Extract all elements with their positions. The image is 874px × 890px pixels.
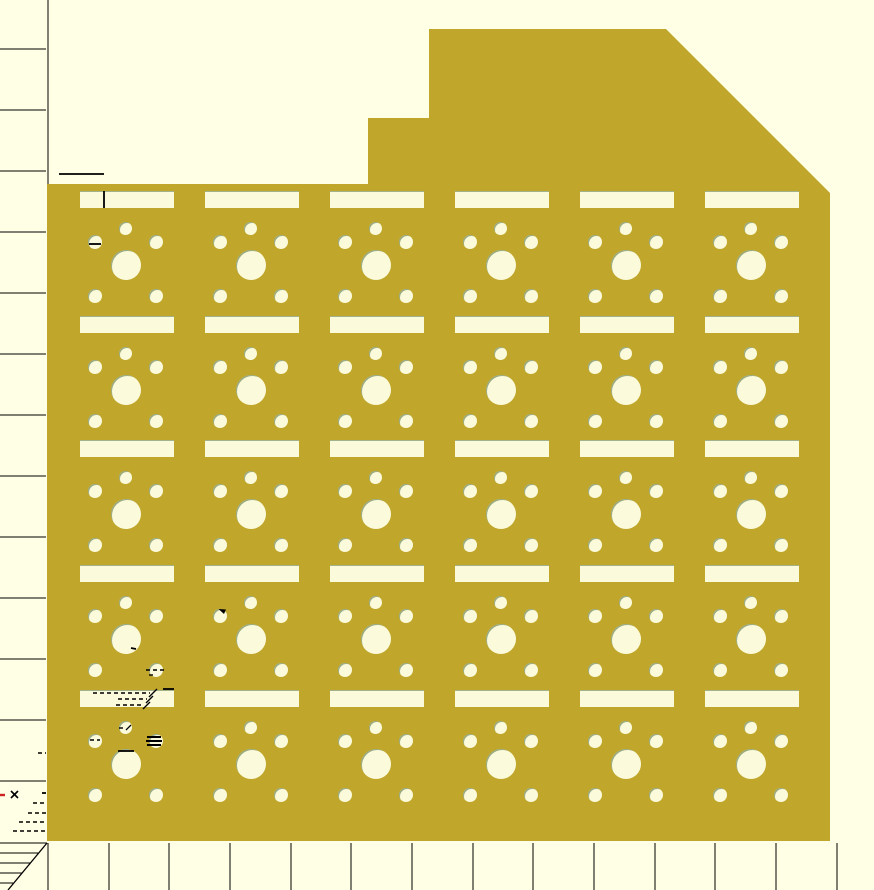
- hole-slot: [580, 316, 674, 333]
- cad-viewport[interactable]: [0, 0, 874, 890]
- upper-left-small-hole: [713, 734, 727, 748]
- lower-right-small-hole: [274, 414, 288, 428]
- center-large-hole: [736, 375, 766, 405]
- lower-right-small-hole: [149, 663, 163, 677]
- lower-right-small-hole: [774, 663, 788, 677]
- center-large-hole: [486, 749, 516, 779]
- top-small-hole: [494, 596, 507, 609]
- lower-right-small-hole: [274, 788, 288, 802]
- lower-right-small-hole: [149, 538, 163, 552]
- top-small-hole: [119, 347, 132, 360]
- upper-right-small-hole: [524, 484, 538, 498]
- top-small-hole: [494, 471, 507, 484]
- upper-left-small-hole: [213, 484, 227, 498]
- center-large-hole: [111, 250, 141, 280]
- lower-left-small-hole: [713, 538, 727, 552]
- lower-right-small-hole: [274, 538, 288, 552]
- lower-left-small-hole: [338, 788, 352, 802]
- hole-slot: [205, 440, 299, 457]
- lower-left-small-hole: [88, 538, 102, 552]
- center-large-hole: [361, 250, 391, 280]
- lower-left-small-hole: [88, 663, 102, 677]
- top-small-hole: [744, 347, 757, 360]
- hole-slot: [330, 565, 424, 582]
- upper-right-small-hole: [149, 609, 163, 623]
- upper-left-small-hole: [338, 609, 352, 623]
- hole-slot: [455, 440, 549, 457]
- top-small-hole: [619, 222, 632, 235]
- hole-slot: [205, 565, 299, 582]
- top-small-hole: [619, 347, 632, 360]
- top-small-hole: [119, 721, 132, 734]
- upper-left-small-hole: [463, 734, 477, 748]
- lower-left-small-hole: [713, 414, 727, 428]
- hole-slot: [705, 565, 799, 582]
- lower-right-small-hole: [774, 538, 788, 552]
- hole-slot: [455, 565, 549, 582]
- top-small-hole: [369, 347, 382, 360]
- lower-right-small-hole: [399, 663, 413, 677]
- upper-right-small-hole: [149, 734, 163, 748]
- hole-slot: [330, 191, 424, 208]
- lower-right-small-hole: [524, 414, 538, 428]
- upper-left-small-hole: [713, 609, 727, 623]
- center-large-hole: [611, 624, 641, 654]
- center-large-hole: [486, 499, 516, 529]
- lower-left-small-hole: [338, 289, 352, 303]
- hole-slot: [80, 565, 174, 582]
- lower-left-small-hole: [88, 289, 102, 303]
- hole-slot: [80, 316, 174, 333]
- center-large-hole: [111, 749, 141, 779]
- lower-left-small-hole: [213, 663, 227, 677]
- upper-right-small-hole: [774, 734, 788, 748]
- upper-left-small-hole: [88, 360, 102, 374]
- hole-slot: [205, 191, 299, 208]
- upper-right-small-hole: [774, 360, 788, 374]
- upper-left-small-hole: [213, 235, 227, 249]
- upper-right-small-hole: [274, 235, 288, 249]
- center-large-hole: [361, 624, 391, 654]
- upper-left-small-hole: [713, 360, 727, 374]
- hole-slot: [580, 565, 674, 582]
- top-small-hole: [619, 721, 632, 734]
- top-small-hole: [619, 596, 632, 609]
- hole-slot: [455, 690, 549, 707]
- lower-right-small-hole: [399, 538, 413, 552]
- upper-right-small-hole: [774, 235, 788, 249]
- upper-left-small-hole: [88, 609, 102, 623]
- center-large-hole: [236, 749, 266, 779]
- hole-slot: [80, 440, 174, 457]
- lower-right-small-hole: [649, 538, 663, 552]
- top-small-hole: [744, 222, 757, 235]
- lower-right-small-hole: [274, 663, 288, 677]
- lower-right-small-hole: [649, 663, 663, 677]
- top-small-hole: [119, 222, 132, 235]
- upper-right-small-hole: [774, 484, 788, 498]
- top-small-hole: [244, 596, 257, 609]
- lower-right-small-hole: [149, 788, 163, 802]
- upper-left-small-hole: [463, 609, 477, 623]
- hole-slot: [80, 191, 174, 208]
- center-large-hole: [361, 375, 391, 405]
- lower-left-small-hole: [338, 538, 352, 552]
- lower-left-small-hole: [88, 788, 102, 802]
- upper-right-small-hole: [149, 235, 163, 249]
- center-large-hole: [111, 375, 141, 405]
- upper-left-small-hole: [213, 609, 227, 623]
- lower-right-small-hole: [149, 289, 163, 303]
- upper-left-small-hole: [463, 235, 477, 249]
- lower-left-small-hole: [588, 414, 602, 428]
- hole-layer: [0, 0, 874, 890]
- lower-left-small-hole: [713, 663, 727, 677]
- center-large-hole: [111, 624, 141, 654]
- lower-left-small-hole: [213, 788, 227, 802]
- center-large-hole: [736, 749, 766, 779]
- lower-left-small-hole: [213, 538, 227, 552]
- lower-left-small-hole: [213, 289, 227, 303]
- upper-left-small-hole: [88, 484, 102, 498]
- lower-left-small-hole: [713, 788, 727, 802]
- hole-slot: [580, 690, 674, 707]
- center-large-hole: [611, 250, 641, 280]
- lower-left-small-hole: [713, 289, 727, 303]
- lower-left-small-hole: [463, 289, 477, 303]
- center-large-hole: [611, 749, 641, 779]
- upper-left-small-hole: [713, 484, 727, 498]
- upper-right-small-hole: [399, 235, 413, 249]
- upper-right-small-hole: [399, 609, 413, 623]
- upper-left-small-hole: [88, 734, 102, 748]
- center-large-hole: [736, 250, 766, 280]
- upper-right-small-hole: [524, 360, 538, 374]
- upper-left-small-hole: [713, 235, 727, 249]
- hole-slot: [80, 690, 174, 707]
- center-large-hole: [736, 499, 766, 529]
- center-large-hole: [486, 250, 516, 280]
- upper-left-small-hole: [588, 734, 602, 748]
- lower-left-small-hole: [588, 289, 602, 303]
- lower-right-small-hole: [274, 289, 288, 303]
- center-large-hole: [361, 749, 391, 779]
- lower-right-small-hole: [774, 788, 788, 802]
- hole-slot: [330, 440, 424, 457]
- lower-left-small-hole: [588, 788, 602, 802]
- upper-right-small-hole: [649, 484, 663, 498]
- hole-slot: [705, 440, 799, 457]
- center-large-hole: [236, 250, 266, 280]
- upper-right-small-hole: [399, 360, 413, 374]
- lower-right-small-hole: [149, 414, 163, 428]
- upper-right-small-hole: [274, 734, 288, 748]
- top-small-hole: [369, 721, 382, 734]
- upper-left-small-hole: [213, 734, 227, 748]
- top-small-hole: [369, 596, 382, 609]
- upper-right-small-hole: [274, 484, 288, 498]
- upper-left-small-hole: [588, 609, 602, 623]
- center-large-hole: [236, 375, 266, 405]
- upper-right-small-hole: [649, 360, 663, 374]
- lower-left-small-hole: [463, 788, 477, 802]
- hole-slot: [455, 316, 549, 333]
- upper-right-small-hole: [149, 484, 163, 498]
- lower-right-small-hole: [649, 788, 663, 802]
- top-small-hole: [494, 721, 507, 734]
- center-large-hole: [111, 499, 141, 529]
- lower-left-small-hole: [463, 663, 477, 677]
- top-small-hole: [744, 721, 757, 734]
- upper-right-small-hole: [524, 235, 538, 249]
- top-small-hole: [119, 471, 132, 484]
- top-small-hole: [244, 721, 257, 734]
- top-small-hole: [244, 471, 257, 484]
- center-large-hole: [486, 375, 516, 405]
- top-small-hole: [494, 222, 507, 235]
- top-small-hole: [244, 347, 257, 360]
- upper-right-small-hole: [399, 734, 413, 748]
- upper-left-small-hole: [588, 360, 602, 374]
- upper-left-small-hole: [213, 360, 227, 374]
- top-small-hole: [494, 347, 507, 360]
- upper-left-small-hole: [338, 484, 352, 498]
- top-small-hole: [369, 471, 382, 484]
- lower-right-small-hole: [649, 414, 663, 428]
- upper-right-small-hole: [274, 609, 288, 623]
- upper-right-small-hole: [274, 360, 288, 374]
- lower-left-small-hole: [338, 663, 352, 677]
- center-large-hole: [361, 499, 391, 529]
- hole-slot: [705, 690, 799, 707]
- lower-right-small-hole: [399, 788, 413, 802]
- upper-right-small-hole: [649, 235, 663, 249]
- top-small-hole: [619, 471, 632, 484]
- upper-left-small-hole: [338, 360, 352, 374]
- upper-left-small-hole: [588, 235, 602, 249]
- hole-slot: [330, 316, 424, 333]
- top-small-hole: [119, 596, 132, 609]
- hole-slot: [705, 191, 799, 208]
- upper-right-small-hole: [149, 360, 163, 374]
- hole-slot: [205, 316, 299, 333]
- upper-left-small-hole: [338, 235, 352, 249]
- lower-left-small-hole: [338, 414, 352, 428]
- lower-right-small-hole: [774, 414, 788, 428]
- hole-slot: [330, 690, 424, 707]
- lower-right-small-hole: [524, 538, 538, 552]
- upper-right-small-hole: [399, 484, 413, 498]
- center-large-hole: [236, 499, 266, 529]
- lower-right-small-hole: [399, 289, 413, 303]
- lower-right-small-hole: [774, 289, 788, 303]
- upper-left-small-hole: [88, 235, 102, 249]
- center-large-hole: [611, 499, 641, 529]
- center-large-hole: [736, 624, 766, 654]
- lower-left-small-hole: [463, 414, 477, 428]
- center-large-hole: [486, 624, 516, 654]
- upper-left-small-hole: [463, 484, 477, 498]
- hole-slot: [705, 316, 799, 333]
- upper-right-small-hole: [524, 609, 538, 623]
- upper-left-small-hole: [463, 360, 477, 374]
- upper-right-small-hole: [649, 734, 663, 748]
- lower-left-small-hole: [588, 663, 602, 677]
- hole-slot: [580, 440, 674, 457]
- top-small-hole: [244, 222, 257, 235]
- lower-left-small-hole: [213, 414, 227, 428]
- lower-left-small-hole: [463, 538, 477, 552]
- top-small-hole: [369, 222, 382, 235]
- hole-slot: [580, 191, 674, 208]
- hole-slot: [205, 690, 299, 707]
- lower-right-small-hole: [524, 663, 538, 677]
- center-large-hole: [236, 624, 266, 654]
- lower-right-small-hole: [649, 289, 663, 303]
- upper-right-small-hole: [649, 609, 663, 623]
- center-large-hole: [611, 375, 641, 405]
- top-small-hole: [744, 471, 757, 484]
- upper-right-small-hole: [524, 734, 538, 748]
- upper-left-small-hole: [588, 484, 602, 498]
- upper-left-small-hole: [338, 734, 352, 748]
- upper-right-small-hole: [774, 609, 788, 623]
- lower-left-small-hole: [588, 538, 602, 552]
- top-small-hole: [744, 596, 757, 609]
- lower-right-small-hole: [524, 289, 538, 303]
- hole-slot: [455, 191, 549, 208]
- lower-right-small-hole: [524, 788, 538, 802]
- lower-right-small-hole: [399, 414, 413, 428]
- lower-left-small-hole: [88, 414, 102, 428]
